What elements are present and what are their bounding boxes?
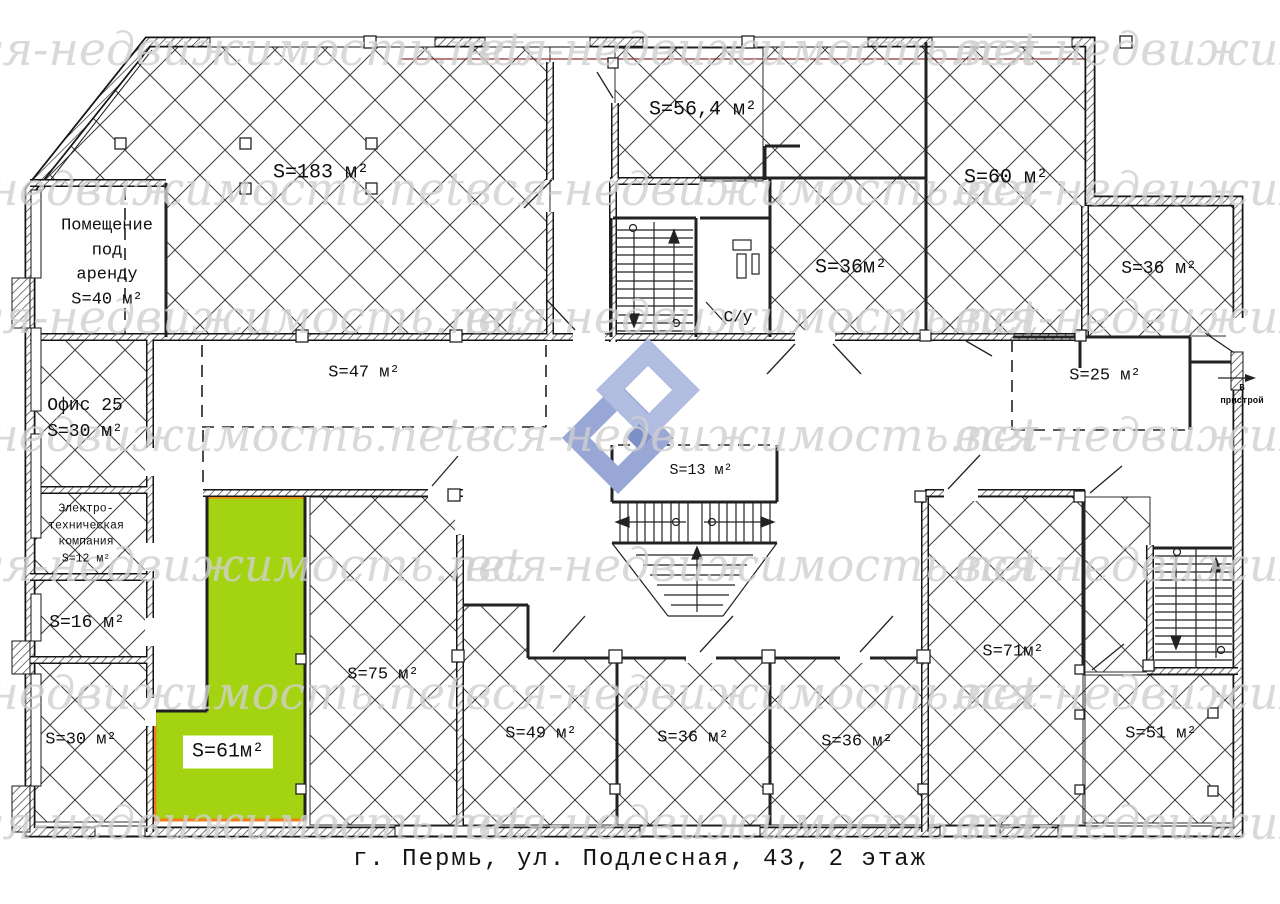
room-label-36-tr: S=36 м² xyxy=(1121,256,1197,282)
highlighted-room-61[interactable] xyxy=(155,497,305,820)
annex-label: В пристрой xyxy=(1220,382,1263,408)
room-label-office25: Офис 25 S=30 м² xyxy=(47,393,123,445)
staircase-central xyxy=(612,503,777,616)
room-label-wc: С/у xyxy=(724,306,753,329)
room-label-25: S=25 м² xyxy=(1069,365,1140,390)
room-label-49: S=49 м² xyxy=(505,723,576,748)
staircase-right xyxy=(1155,548,1232,668)
staircase-top-left xyxy=(616,222,693,333)
room-label-61-highlighted: S=61м² xyxy=(183,736,273,769)
room-label-36-mid: S=36м² xyxy=(815,254,887,283)
room-label-71: S=71м² xyxy=(982,641,1043,666)
room-label-75: S=75 м² xyxy=(347,664,418,689)
room-label-electro: Электро- техническая компания S=12 м² xyxy=(48,502,124,569)
room-label-36-b2: S=36 м² xyxy=(821,731,892,756)
room-label-60: S=60 м² xyxy=(964,164,1048,193)
room-label-30: S=30 м² xyxy=(45,729,116,754)
room-label-51: S=51 м² xyxy=(1125,723,1196,748)
room-label-36-b1: S=36 м² xyxy=(657,727,728,752)
room-label-16: S=16 м² xyxy=(49,610,125,636)
plan-caption: г. Пермь, ул. Подлесная, 43, 2 этаж xyxy=(353,846,927,873)
room-label-183: S=183 м² xyxy=(273,159,369,188)
room-label-13: S=13 м² xyxy=(669,460,732,482)
room-label-rent: Помещение под аренду S=40 м² xyxy=(61,215,153,314)
floor-plan: вся-недвижимость.net вся-недвижимость.ne… xyxy=(0,0,1280,904)
room-label-56: S=56,4 м² xyxy=(649,96,757,125)
room-label-47: S=47 м² xyxy=(328,362,399,387)
